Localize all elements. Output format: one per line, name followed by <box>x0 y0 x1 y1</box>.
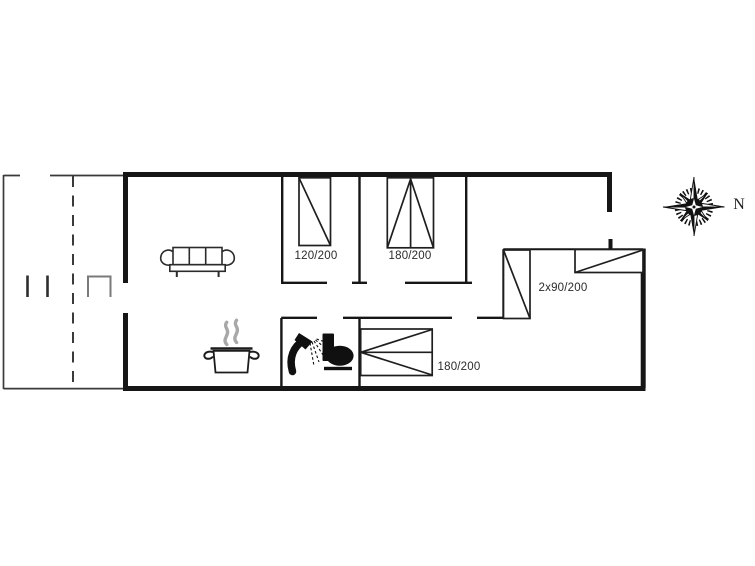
cooking-pot-icon <box>204 320 258 372</box>
bed-label-180x200-bottom: 180/200 <box>436 361 482 373</box>
bed-120x200-icon <box>299 178 331 246</box>
sofa-icon <box>161 248 235 278</box>
toilet-icon <box>323 334 354 371</box>
floor-plan-drawing <box>0 0 755 566</box>
compass-north-label: N <box>729 196 749 214</box>
bed-label-2x90x200: 2x90/200 <box>536 282 590 294</box>
terrace-table-icon <box>88 277 111 298</box>
steam-icon <box>225 320 237 344</box>
bed-90x200-vertical-icon <box>504 250 531 319</box>
bed-180x200-icon <box>387 178 433 248</box>
compass-rose-icon <box>663 177 725 236</box>
bed-90x200-horizontal-icon <box>575 250 643 273</box>
bed-label-180x200-top: 180/200 <box>387 250 433 262</box>
terrace-posts <box>28 276 48 298</box>
floor-plan-canvas: 120/200 180/200 2x90/200 180/200 N <box>0 0 755 566</box>
terrace-outline <box>4 175 126 389</box>
bed-180x200-bottom-icon <box>361 329 433 376</box>
bed-icons <box>299 178 643 376</box>
bed-label-120x200: 120/200 <box>293 250 339 262</box>
